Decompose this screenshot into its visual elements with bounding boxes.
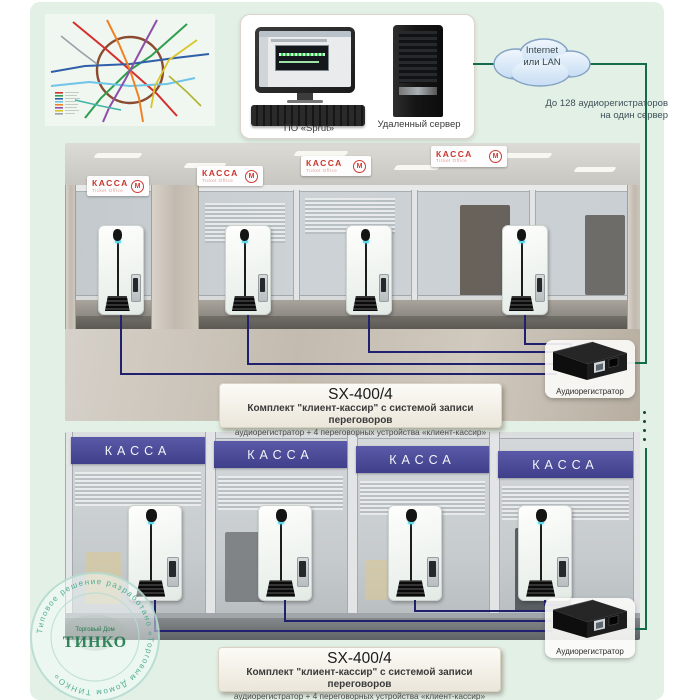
intercom-speaker-base — [266, 580, 295, 596]
sprut-software-screen — [259, 31, 351, 87]
audio-recorder-icon — [545, 590, 635, 640]
kit-composition: аудиорегистратор + 4 переговорных устрой… — [220, 427, 501, 437]
interior-light — [365, 560, 387, 600]
window-frame — [411, 190, 418, 300]
kassa-banner-title: КАССА — [389, 453, 455, 467]
cloud-label-line2: или LAN — [482, 57, 602, 69]
kassa-banner: КАССА — [498, 451, 633, 478]
line-down-to-recorder-2 — [645, 448, 647, 630]
kit-model: SX-400/4 — [220, 386, 501, 403]
intercom-unit — [258, 505, 312, 601]
desktop-computer-icon — [255, 27, 355, 93]
side-module — [379, 274, 390, 302]
wire-unit6 — [284, 600, 286, 622]
metro-map — [45, 14, 215, 126]
cloud-label-line1: Internet — [482, 45, 602, 57]
wire-unit3 — [368, 315, 370, 353]
kassa-sign-subtitle: Ticket Office — [306, 169, 343, 174]
audio-recorder-label: Аудиорегистратор — [545, 647, 635, 656]
capacity-note: До 128 аудиорегистраторов на один сервер — [520, 98, 668, 121]
audio-recorder-1: Аудиорегистратор — [545, 340, 635, 398]
wire-unit3 — [368, 351, 557, 353]
app-toolbar — [259, 37, 268, 87]
kassa-banner: КАССА — [214, 441, 347, 468]
wire-unit2 — [247, 315, 249, 365]
kassa-sign-title: КАССА — [202, 169, 239, 178]
intercom-unit — [225, 225, 271, 315]
metro-logo-icon: М — [245, 170, 258, 183]
side-module — [131, 274, 142, 302]
app-row — [271, 39, 327, 42]
marble-pillar — [151, 185, 199, 329]
kassa-banner-title: КАССА — [105, 444, 171, 458]
kassa-sign-subtitle: Ticket Office — [202, 179, 239, 184]
side-module — [557, 557, 569, 587]
kassa-banner-title: КАССА — [532, 458, 598, 472]
capacity-note-line1: До 128 аудиорегистраторов — [520, 98, 668, 110]
kassa-sign-subtitle: Ticket Office — [436, 159, 473, 164]
capacity-note-line2: на один сервер — [520, 110, 668, 122]
continuation-dots-icon — [643, 429, 646, 432]
server-software-box: ПО «Sprut» Удаленный сервер — [240, 14, 475, 139]
kassa-sign-subtitle: Ticket Office — [92, 189, 129, 194]
stamp-logo-main: ТИНКО — [63, 634, 127, 651]
audio-recorder-2: Аудиорегистратор — [545, 598, 635, 658]
microphone-icon — [361, 229, 370, 241]
continuation-dots-icon — [643, 411, 646, 414]
kit-label-top: SX-400/4 Комплект "клиент-кассир" с сист… — [219, 383, 502, 428]
audio-recorder-label: Аудиорегистратор — [545, 387, 635, 396]
microphone-icon — [517, 229, 526, 241]
marble-pillar — [627, 185, 640, 329]
wire-unit6 — [284, 620, 552, 622]
kit-label-bottom: SX-400/4 Комплект "клиент-кассир" с сист… — [218, 647, 501, 692]
tinko-stamp: Типовое решение разработано «Торговым До… — [25, 567, 165, 700]
internet-cloud: Internet или LAN — [482, 30, 602, 96]
kassa-sign-title: КАССА — [436, 150, 473, 159]
intercom-unit — [346, 225, 392, 315]
diagram-canvas: ПО «Sprut» Удаленный сервер — [0, 0, 700, 700]
wire-unit5 — [154, 630, 552, 632]
side-module — [427, 557, 439, 587]
intercom-unit — [388, 505, 442, 601]
kit-description: Комплект "клиент-кассир" с системой запи… — [219, 667, 500, 691]
intercom-speaker-base — [509, 296, 534, 311]
intercom-speaker-base — [232, 296, 257, 311]
kit-model: SX-400/4 — [219, 650, 500, 667]
interior-cabinet — [585, 215, 625, 295]
microphone-icon — [240, 229, 249, 241]
side-module — [258, 274, 269, 302]
intercom-unit — [502, 225, 548, 315]
kassa-banner: КАССА — [356, 446, 489, 473]
metro-logo-icon: М — [131, 180, 144, 193]
mic-stem — [410, 520, 412, 581]
kassa-sign: КАССАTicket Office М — [197, 166, 263, 186]
cloud-label: Internet или LAN — [482, 45, 602, 69]
kassa-sign: КАССАTicket Office М — [87, 176, 149, 196]
window-frame — [293, 190, 300, 300]
microphone-icon — [146, 509, 157, 521]
side-module — [535, 274, 546, 302]
monitor-foot — [287, 100, 323, 103]
kassa-sign-title: КАССА — [306, 159, 343, 168]
kassa-sign: КАССАTicket Office М — [301, 156, 371, 176]
mic-stem — [540, 520, 542, 581]
mic-stem — [521, 239, 523, 297]
kassa-sign: КАССАTicket Office М — [431, 146, 507, 167]
wire-unit7 — [414, 610, 552, 612]
metro-logo-icon: М — [489, 150, 502, 163]
kit-composition: аудиорегистратор + 4 переговорных устрой… — [219, 691, 500, 700]
side-module — [297, 557, 309, 587]
wire-unit2 — [247, 363, 557, 365]
wire-unit1 — [120, 373, 557, 375]
app-titlebar — [259, 31, 351, 37]
monitor-stand — [297, 93, 313, 100]
mic-stem — [280, 520, 282, 581]
server-tower-icon — [393, 25, 443, 117]
intercom-speaker-base — [353, 296, 378, 311]
kassa-banner: КАССА — [71, 437, 205, 464]
audio-recorder-icon — [545, 332, 635, 382]
side-module — [167, 557, 179, 587]
kit-description: Комплект "клиент-кассир" с системой запи… — [220, 403, 501, 427]
mic-stem — [365, 239, 367, 297]
metro-logo-icon: М — [353, 160, 366, 173]
microphone-icon — [113, 229, 122, 241]
computer-label: ПО «Sprut» — [247, 123, 371, 134]
audio-waveform-icon — [275, 45, 329, 71]
intercom-unit — [98, 225, 144, 315]
wire-unit4 — [524, 315, 526, 345]
intercom-unit — [518, 505, 572, 601]
mic-stem — [117, 239, 119, 297]
microphone-icon — [536, 509, 547, 521]
wire-unit1 — [120, 315, 122, 375]
mic-stem — [244, 239, 246, 297]
marble-pillar — [65, 185, 76, 329]
microphone-icon — [406, 509, 417, 521]
server-label: Удаленный сервер — [373, 119, 465, 130]
microphone-icon — [276, 509, 287, 521]
kassa-sign-title: КАССА — [92, 179, 129, 188]
intercom-speaker-base — [105, 296, 130, 311]
continuation-dots-icon — [643, 420, 646, 423]
stamp-logo-top: Торговый Дом — [75, 626, 114, 633]
kassa-banner-title: КАССА — [247, 448, 313, 462]
continuation-dots-icon — [643, 438, 646, 441]
intercom-speaker-base — [396, 580, 425, 596]
